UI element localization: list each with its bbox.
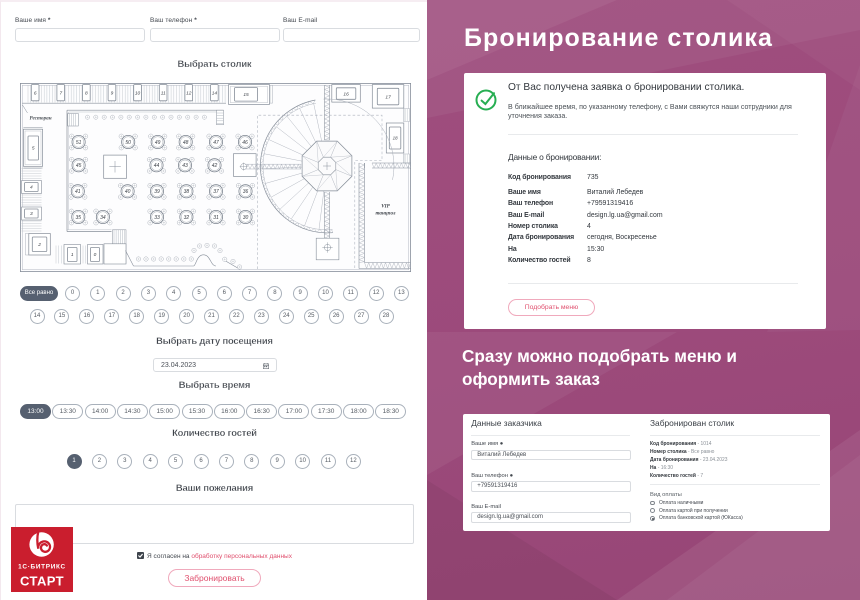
svg-text:44: 44: [154, 163, 160, 169]
svg-text:9: 9: [111, 90, 114, 96]
svg-text:30: 30: [243, 215, 249, 221]
svg-text:Ресторан: Ресторан: [30, 116, 52, 122]
svg-text:32: 32: [184, 215, 190, 221]
svg-text:3: 3: [30, 211, 33, 217]
svg-text:43: 43: [182, 163, 188, 169]
svg-text:50: 50: [125, 140, 131, 146]
svg-text:1С·БИТРИКС: 1С·БИТРИКС: [18, 564, 66, 571]
svg-text:12: 12: [186, 90, 192, 96]
svg-text:2: 2: [37, 242, 41, 248]
svg-text:45: 45: [76, 163, 82, 169]
svg-text:0: 0: [94, 252, 97, 258]
svg-text:41: 41: [75, 189, 81, 195]
svg-text:15: 15: [243, 92, 249, 98]
svg-text:31: 31: [213, 215, 219, 221]
svg-text:VIP: VIP: [381, 204, 390, 210]
svg-text:1: 1: [71, 252, 74, 258]
svg-text:42: 42: [212, 163, 218, 169]
svg-text:10: 10: [135, 90, 141, 96]
svg-text:11: 11: [161, 90, 166, 96]
svg-text:17: 17: [385, 94, 391, 100]
svg-text:51: 51: [76, 140, 82, 146]
svg-text:7: 7: [59, 90, 62, 96]
svg-text:46: 46: [242, 140, 248, 146]
svg-text:35: 35: [76, 215, 82, 221]
svg-text:СТАРТ: СТАРТ: [20, 574, 64, 589]
svg-text:4: 4: [30, 185, 33, 191]
svg-text:34: 34: [100, 215, 106, 221]
svg-text:47: 47: [213, 140, 219, 146]
svg-text:39: 39: [154, 189, 160, 195]
svg-text:танцпол: танцпол: [375, 211, 395, 217]
svg-text:16: 16: [343, 91, 349, 97]
svg-text:14: 14: [212, 90, 218, 96]
svg-text:37: 37: [213, 189, 219, 195]
svg-text:48: 48: [183, 140, 189, 146]
svg-text:38: 38: [184, 189, 190, 195]
svg-text:5: 5: [32, 146, 35, 152]
svg-text:40: 40: [125, 189, 131, 195]
svg-text:18: 18: [393, 136, 398, 141]
svg-text:36: 36: [243, 189, 249, 195]
svg-text:8: 8: [85, 90, 88, 96]
svg-text:6: 6: [34, 90, 37, 96]
svg-text:49: 49: [155, 140, 161, 146]
svg-text:33: 33: [154, 215, 160, 221]
